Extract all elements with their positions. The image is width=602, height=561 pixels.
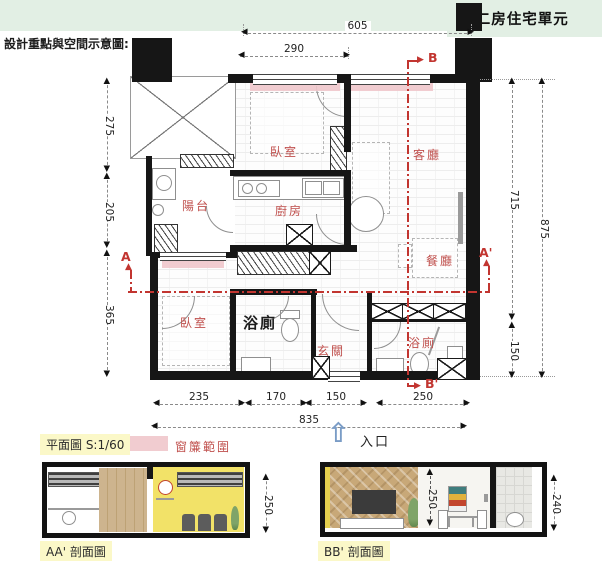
entrance-arrow-icon: ⇧ [327, 420, 350, 447]
dim-label: 715 [507, 190, 519, 208]
wall-bedroom1-kitchen [230, 170, 351, 176]
arrow-up-icon: ▲ [509, 77, 516, 86]
entrance-label: 入口 [360, 431, 390, 450]
dim-right-150: ▲ 150 ▼ [512, 324, 513, 376]
dim-label: 150 [323, 392, 349, 404]
balcony-fixture-1 [152, 204, 164, 216]
curtain-strip-3 [162, 261, 224, 268]
section-marker-b-prime: B' [425, 378, 438, 391]
dim-left-205: ▲ 205 ▼ [107, 175, 108, 246]
burner-2 [256, 183, 267, 194]
room-label-living: 客廳 [413, 149, 441, 161]
room-label-bedroom1: 臥室 [270, 146, 298, 158]
bb-art-frame [448, 486, 467, 512]
dim-label: 240 [549, 494, 561, 512]
dim-right-715: ▲ 715 ▼ [512, 80, 513, 318]
dim-section-bb-240: ▲ 240 ▼ [554, 477, 555, 529]
aa-wood-panels [99, 468, 147, 532]
corridor-wardrobe [237, 251, 310, 275]
section-arrow-a-prime-icon: ▲ [483, 259, 490, 268]
dim-left-275: ▲ 275 ▼ [107, 80, 108, 170]
dim-label: 250 [261, 495, 273, 513]
dim-bottom-250: ◀ 250 ▶ [378, 404, 468, 405]
section-arrow-b-icon: ▶ [417, 56, 424, 65]
bb-toilet [506, 512, 524, 527]
sink-basin-1 [305, 181, 322, 195]
aa-dining-chair-2 [198, 514, 211, 531]
dim-label: 150 [507, 341, 519, 359]
closet-x-3 [433, 303, 466, 320]
dim-top-605: ◀ 605 ▶ [243, 33, 472, 34]
aa-chair [62, 511, 76, 525]
dim-label: 365 [102, 305, 114, 323]
aa-desk [48, 508, 100, 510]
section-marker-b: B [428, 52, 438, 65]
arrow-up-icon: ▲ [551, 474, 558, 483]
wall-left-lower [150, 252, 158, 380]
aa-window-blind-1 [48, 472, 100, 487]
floor-plan-page: ■ 二房住宅單元 設計重點與空間示意圖: [0, 0, 602, 561]
bb-chair-1 [438, 510, 448, 529]
arrow-up-icon: ▲ [539, 77, 546, 86]
dim-label: 290 [281, 44, 307, 56]
aa-shelf [156, 498, 174, 500]
arrow-left-icon: ◀ [245, 399, 252, 408]
toilet-1 [281, 318, 299, 342]
dim-left-365: ▲ 365 ▼ [107, 252, 108, 375]
section-stub-a-prime [488, 266, 490, 291]
aa-dining-chair-1 [182, 514, 195, 531]
wall-right [466, 74, 480, 380]
room-label-foyer: 玄關 [317, 345, 345, 357]
dim-label: 275 [102, 116, 114, 134]
section-stub-a [130, 270, 132, 291]
plan-scale-tag: 平面圖 S:1/60 [40, 434, 130, 455]
arrow-right-icon: ▶ [467, 28, 474, 37]
bb-table-leg-1 [448, 518, 450, 527]
void-area [130, 76, 236, 159]
curtain-swatch [130, 436, 168, 451]
bb-chair-2 [477, 510, 487, 529]
curtain-range-label: 窗簾範圍 [175, 438, 231, 455]
wall-bedroom1-living [344, 74, 351, 152]
dim-label: 170 [263, 392, 289, 404]
dim-bottom-835: ◀ 835 ▶ [153, 427, 465, 428]
dim-section-aa-250: ▲ 250 ▼ [266, 476, 267, 531]
dim-label: 250 [425, 489, 437, 507]
room-label-bath1: 浴廁 [243, 316, 277, 331]
bb-tv-console [340, 518, 404, 529]
dim-bottom-235: ◀ 235 ▶ [155, 404, 243, 405]
room-label-dining: 餐廳 [426, 255, 454, 267]
section-line-aa [128, 291, 490, 293]
room-label-balcony: 陽台 [182, 200, 210, 212]
arrow-right-icon: ▶ [360, 399, 367, 408]
arrow-left-icon: ◀ [238, 51, 245, 60]
arrow-down-icon: ▼ [427, 519, 434, 528]
washer-door [156, 175, 172, 191]
section-aa-label: AA' 剖面圖 [40, 541, 112, 561]
dining-chair-outline [398, 244, 412, 268]
window-1 [253, 74, 337, 85]
arrow-left-icon: ◀ [241, 28, 248, 37]
column-x-kitchen [286, 224, 313, 246]
arrow-left-icon: ◀ [305, 399, 312, 408]
tv-panel [458, 192, 463, 244]
window-2 [350, 74, 430, 85]
entrance-threshold [328, 371, 360, 382]
aa-plant [231, 506, 239, 530]
wall-balcony-left [146, 156, 152, 256]
arrow-down-icon: ▼ [509, 371, 516, 380]
arrow-down-icon: ▼ [539, 371, 546, 380]
dim-label: 205 [102, 202, 114, 220]
dim-bottom-170: ◀ 170 ▶ [247, 404, 305, 405]
section-arrow-a-icon: ▲ [125, 263, 132, 272]
arrow-right-icon: ▶ [460, 422, 467, 431]
arrow-up-icon: ▲ [509, 321, 516, 330]
burner-1 [242, 183, 253, 194]
arrow-left-icon: ◀ [376, 399, 383, 408]
column-x-foyer [312, 356, 330, 379]
dim-label: 250 [410, 392, 436, 404]
bb-sconce [484, 494, 488, 502]
window-3 [160, 252, 226, 261]
arrow-up-icon: ▲ [104, 172, 111, 181]
balcony-shelf [180, 154, 234, 168]
dim-label: 875 [537, 219, 549, 237]
dim-label: 835 [296, 415, 322, 427]
aa-dining-chair-3 [214, 514, 227, 531]
arrow-right-icon: ▶ [463, 399, 470, 408]
arrow-up-icon: ▲ [104, 77, 111, 86]
arrow-up-icon: ▲ [427, 468, 434, 477]
wall-bath1-left [230, 289, 236, 377]
column-x-corridor [309, 251, 331, 275]
section-bb-label: BB' 剖面圖 [318, 541, 390, 561]
room-label-bedroom2: 臥室 [180, 317, 208, 329]
arrow-down-icon: ▼ [104, 370, 111, 379]
room-label-bath2: 浴廁 [408, 337, 436, 349]
column-top-left [132, 38, 172, 82]
arrow-down-icon: ▼ [263, 526, 270, 535]
closet-x-1 [371, 303, 404, 320]
arrow-up-icon: ▲ [104, 249, 111, 258]
section-arrow-b-prime-icon: ▶ [414, 382, 421, 391]
room-label-kitchen: 廚房 [275, 205, 303, 217]
aa-window-blind-2 [177, 472, 243, 487]
dim-section-bb-250: ▲ 250 ▼ [430, 471, 431, 524]
arrow-right-icon: ▶ [343, 51, 350, 60]
arrow-down-icon: ▼ [551, 524, 558, 533]
bb-tv [352, 490, 396, 514]
dim-top-290: ◀ 290 ▶ [240, 56, 348, 57]
sink-basin-2 [323, 181, 340, 195]
drawing-caption: 設計重點與空間示意圖: [4, 35, 129, 52]
wall-kitchen-living [344, 176, 351, 248]
bb-table-leg-2 [472, 518, 474, 527]
arrow-left-icon: ◀ [153, 399, 160, 408]
aa-logo-plate [158, 480, 173, 495]
dim-right-875: ▲ 875 ▼ [542, 80, 543, 376]
cabinet-x-bath2 [437, 358, 467, 380]
arrow-left-icon: ◀ [151, 422, 158, 431]
arrow-up-icon: ▲ [263, 473, 270, 482]
dim-label: 605 [344, 21, 370, 33]
dim-bottom-150: ◀ 150 ▶ [307, 404, 365, 405]
round-table [348, 196, 384, 232]
dim-label: 235 [186, 392, 212, 404]
